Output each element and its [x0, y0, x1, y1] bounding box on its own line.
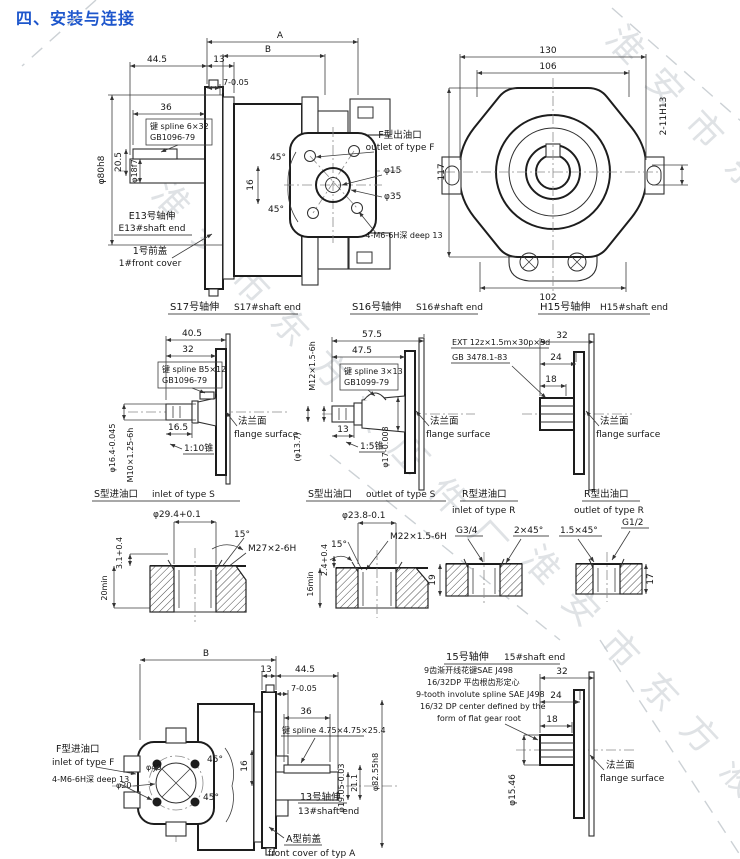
flange-surface-en: flange surface: [426, 430, 491, 440]
spline-standard: GB 3478.1-83: [452, 353, 507, 362]
s16-title-cn: S16号轴伸: [352, 300, 401, 313]
s16-title-en: S16#shaft end: [416, 303, 483, 313]
flange-surface-en: flange surface: [234, 430, 299, 440]
flange-surface-cn: 法兰面: [238, 415, 267, 427]
title-cn: S型进油口: [94, 488, 138, 500]
shaft-label-cn: E13号轴伸: [129, 210, 176, 222]
bolt-hole: [153, 798, 162, 807]
dim-depth2: 20min: [100, 575, 109, 600]
dim-d18f7: φ18f7: [130, 159, 139, 182]
angle: 15°: [331, 540, 347, 550]
dim-20-5: 20.5: [114, 152, 124, 172]
angle-45-lower: 45°: [268, 205, 284, 215]
pump-side-view-bottom: 45° 45° 16 B 13 44.5 7-0.05 36 键 spline …: [52, 649, 400, 859]
angle-45-upper: 45°: [207, 755, 223, 765]
thread-label: M10×1.25-6h: [126, 428, 135, 483]
thread: G3/4: [456, 526, 478, 536]
pump-side-view-top: A B 44.5 13 7-0.05 36 键 spline 6×32 GB10…: [97, 31, 443, 296]
front-cover-label-en: front cover of typ A: [268, 849, 356, 859]
spline-spec: EXT 12z×1.5m×30p×5d: [452, 338, 550, 347]
technical-drawing: 淮安市东方液压件厂 淮安市东方液压件厂 淮安市东方液压件厂: [0, 0, 740, 859]
flange-plate: [405, 351, 415, 473]
dim-d13-7: (φ13.7): [293, 432, 302, 461]
dim-57-5: 57.5: [362, 330, 382, 340]
dim-32: 32: [556, 667, 567, 677]
bolt-note: 4-M6-6H深 deep 13: [52, 775, 129, 784]
dim-32: 32: [556, 331, 567, 341]
shaft-key: [284, 765, 330, 773]
flange-plate: [574, 352, 584, 474]
dim-depth: 19: [428, 574, 438, 586]
document-page: 四、安装与连接 淮安市东方液压件厂 淮安市东方液压件厂 淮安市东方液压件厂: [0, 0, 740, 859]
dim-32: 32: [182, 345, 193, 355]
flange-surface-en: flange surface: [600, 774, 665, 784]
flange-surface-cn: 法兰面: [600, 415, 629, 427]
taper-section: [198, 398, 216, 426]
dim-depth1: 2.4+0.4: [320, 544, 329, 576]
key-spline-standard: GB1096-79: [150, 133, 195, 142]
inlet-f-label-cn: F型进油口: [56, 743, 99, 755]
spline-note-3: 9-tooth involute spline SAE J498: [416, 690, 545, 699]
dim-bore: φ23.8-0.1: [342, 511, 386, 521]
title-en: outlet of type R: [574, 506, 644, 516]
flange-surface-en: flange surface: [596, 430, 661, 440]
dim-44-5: 44.5: [147, 55, 167, 65]
dim-d16-4: φ16.4-0.045: [108, 424, 117, 473]
title-en: inlet of type S: [152, 490, 215, 500]
thread: M22×1.5-6H: [390, 532, 447, 542]
flange-plate: [574, 690, 584, 818]
inlet-f-label-en: inlet of type F: [52, 758, 114, 768]
mounting-flange: [262, 692, 276, 848]
dim-40-5: 40.5: [182, 329, 202, 339]
dim-d82-55: φ82.55h8: [371, 753, 380, 791]
shaft-label-en: 13#shaft end: [298, 807, 359, 817]
dim-bore: φ29.4+0.1: [153, 510, 201, 520]
angle-45-lower: 45°: [203, 793, 219, 803]
chamfer: 1.5×45°: [560, 526, 598, 536]
flange-surface-cn: 法兰面: [430, 415, 459, 427]
s15-title-en: 15#shaft end: [504, 653, 565, 663]
outlet-f-label-en: outlet of type F: [366, 143, 435, 153]
dim-21-1: 21.1: [350, 774, 359, 792]
port-s-inlet: S型进油口 inlet of type S φ29.4+0.1 15° M27×…: [92, 488, 296, 622]
dim-depth2: 16min: [306, 571, 315, 596]
dim-d17: φ17-0.008: [381, 426, 390, 467]
chamfer: 2×45°: [514, 526, 543, 536]
dim-13: 13: [213, 55, 224, 65]
slot-note: 2-11H13: [659, 97, 669, 136]
s17-title-en: S17#shaft end: [234, 303, 301, 313]
bolt-hole: [191, 760, 200, 769]
front-cover-label-cn: 1号前盖: [133, 245, 168, 257]
bolt-note: 4-M6-6H深 deep 13: [365, 231, 442, 240]
spline-note-5: form of flat gear root: [437, 714, 521, 723]
thread-section: [332, 406, 354, 422]
dim-44-5: 44.5: [295, 665, 315, 675]
title-en: inlet of type R: [452, 506, 515, 516]
dim-16: 16: [246, 179, 256, 191]
thread-section: [166, 404, 192, 420]
key: [200, 392, 214, 399]
title-cn: S型出油口: [308, 488, 352, 500]
dim-13: 13: [337, 425, 348, 435]
s15-title-cn: 15号轴伸: [446, 650, 489, 663]
key-spline-standard: GB1096-79: [162, 376, 207, 385]
h15-shaft-end: H15号轴伸 H15#shaft end EXT 12z×1.5m×30p×5d…: [451, 300, 668, 490]
shaft: [130, 159, 207, 183]
taper-label: 1:10锥: [184, 442, 213, 454]
dim-depth: 17: [646, 573, 656, 584]
spline-note-4: 16/32 DP center defined by the: [420, 702, 546, 711]
front-cover-label-en: 1#front cover: [119, 259, 182, 269]
dim-36: 36: [160, 103, 172, 113]
dim-d35: φ35: [384, 192, 401, 202]
dim-13: 13: [260, 665, 271, 675]
dim-b: B: [265, 45, 271, 55]
dim-106: 106: [539, 62, 556, 72]
dim-16-5: 16.5: [168, 423, 188, 433]
dim-d15-46: φ15.46: [508, 774, 518, 806]
dim-130: 130: [539, 46, 556, 56]
bolt-hole: [191, 798, 200, 807]
spline-note-1: 9齿渐开线花键SAE J498: [424, 665, 513, 675]
h15-title-en: H15#shaft end: [600, 303, 668, 313]
angle-45-upper: 45°: [270, 153, 286, 163]
thread: M27×2-6H: [248, 544, 296, 554]
dim-117: 117: [437, 163, 447, 180]
dim-18: 18: [546, 715, 558, 725]
dim-24: 24: [550, 691, 562, 701]
key-spline-note: 键 spline B5×12: [162, 364, 226, 374]
flange-surface-cn: 法兰面: [606, 759, 635, 771]
shaft-label-en: E13#shaft end: [119, 224, 186, 234]
key-spline-standard: GB1099-79: [344, 378, 389, 387]
front-cover-label-cn: A型前盖: [286, 833, 321, 845]
outlet-f-label-cn: F型出油口: [378, 129, 421, 141]
shaft-key: [133, 149, 177, 159]
dim-b: B: [203, 649, 209, 659]
spline-note-2: 16/32DP 平齿根齿形定心: [427, 677, 520, 687]
dim-36: 36: [300, 707, 312, 717]
dim-d40: φ40: [146, 763, 161, 772]
dim-d19-05: φ19.05-0.03: [337, 764, 346, 813]
angle: 15°: [234, 530, 250, 540]
thread-label: M12×1.5-6h: [308, 341, 317, 391]
dim-47-5: 47.5: [352, 346, 372, 356]
mounting-flange: [205, 87, 223, 289]
dim-7: 7-0.05: [291, 684, 317, 693]
key-spline-note: 键 spline 4.75×4.75×25.4: [282, 725, 386, 735]
title-cn: R型出油口: [584, 488, 629, 500]
h15-title-cn: H15号轴伸: [540, 300, 590, 313]
dim-depth1: 3.1+0.4: [115, 537, 124, 569]
taper-label: 1:5锥: [360, 440, 384, 452]
dim-24: 24: [550, 353, 562, 363]
port-s-outlet: S型出油口 outlet of type S φ23.8-0.1 M22×1.5…: [306, 488, 447, 618]
s17-title-cn: S17号轴伸: [170, 300, 219, 313]
dim-16: 16: [240, 760, 250, 772]
title-cn: R型进油口: [462, 488, 507, 500]
dim-d80h8: φ80h8: [97, 155, 107, 184]
title-en: outlet of type S: [366, 490, 436, 500]
dim-18: 18: [545, 375, 557, 385]
dim-7: 7-0.05: [223, 78, 249, 87]
key-spline-note: 键 spline 3×13: [344, 366, 403, 376]
key-spline-note: 键 spline 6×32: [150, 121, 209, 131]
dim-d15: φ15: [384, 166, 401, 176]
thread: G1/2: [622, 518, 643, 528]
shaft-label-cn: 13号轴伸: [300, 791, 341, 803]
dim-a: A: [277, 31, 284, 41]
